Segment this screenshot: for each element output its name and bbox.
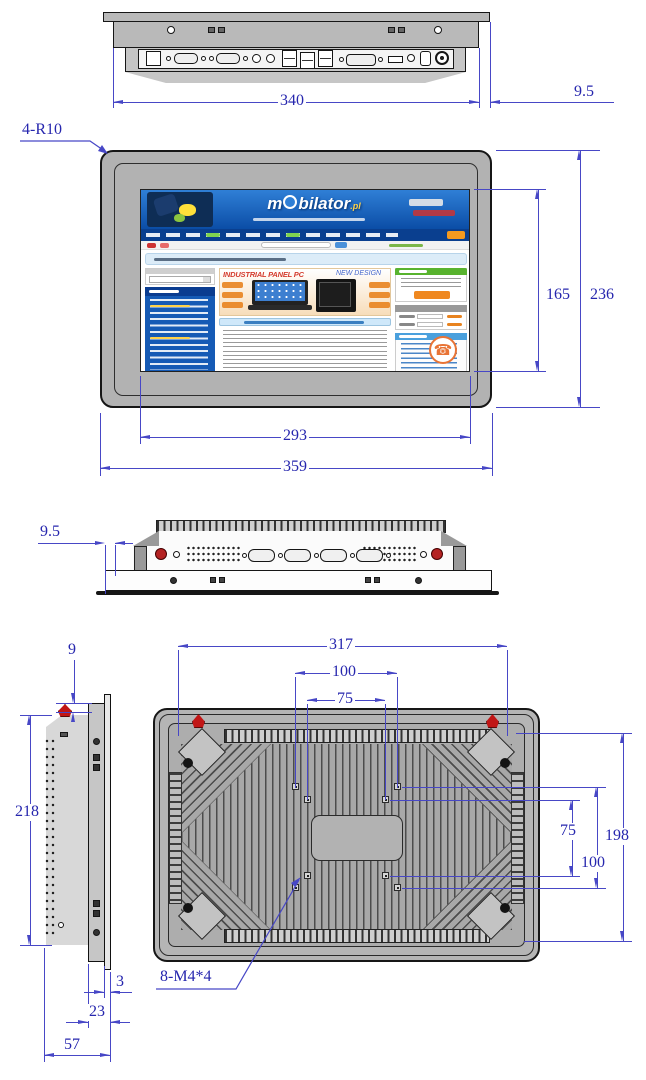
vesa-hole-icon xyxy=(382,872,389,879)
screw-hole-icon xyxy=(173,551,180,558)
nav-item-green[interactable] xyxy=(206,233,220,237)
bezel-button-icon[interactable] xyxy=(210,577,216,583)
nav-item-green[interactable] xyxy=(286,233,300,237)
rear-top-comb xyxy=(224,729,490,743)
screw-hole-icon xyxy=(166,56,171,61)
main-banner[interactable]: INDUSTRIAL PANEL PC NEW DESIGN xyxy=(219,268,391,316)
top-view-mounting-flange xyxy=(113,21,479,48)
phone-icon[interactable]: ☎ xyxy=(429,336,457,364)
banner-title: INDUSTRIAL PANEL PC xyxy=(223,270,304,279)
vesa-hole-icon xyxy=(304,872,311,879)
banner-laptop-image xyxy=(252,280,308,305)
site-substrip xyxy=(141,241,470,250)
category-links-placeholder[interactable] xyxy=(150,299,208,370)
flange-hole-icon xyxy=(434,26,442,34)
offer-button[interactable] xyxy=(414,291,450,299)
sidebar-categories[interactable] xyxy=(145,287,215,372)
bezel-button-icon[interactable] xyxy=(93,764,100,771)
dim-236-label: 236 xyxy=(588,287,616,304)
article-paragraph-placeholder xyxy=(223,351,387,371)
profile-front-glass xyxy=(104,694,111,970)
sim-slot-icon xyxy=(388,56,403,63)
bezel-button-icon[interactable] xyxy=(219,577,225,583)
bezel-button-icon[interactable] xyxy=(93,900,100,907)
logo-text: bilator xyxy=(298,194,350,213)
logo-globe-icon xyxy=(283,195,297,209)
nav-item-highlight[interactable] xyxy=(447,231,465,239)
flange-key-icon xyxy=(388,27,395,33)
article-headline xyxy=(219,318,391,326)
dim-165-label: 165 xyxy=(544,287,572,304)
login-field[interactable] xyxy=(417,314,443,319)
thumbscrew-red-icon xyxy=(431,548,443,560)
side-base-lip xyxy=(96,591,499,595)
screw-hole-icon xyxy=(378,57,383,62)
dim-198-label: 198 xyxy=(603,828,631,845)
nav-items-placeholder[interactable] xyxy=(146,233,398,237)
flag-icon[interactable] xyxy=(147,243,156,248)
article-paragraph-placeholder xyxy=(223,330,387,347)
audio-jack-icon xyxy=(252,54,261,63)
side-bezel-bar xyxy=(105,570,492,591)
serial-port-icon xyxy=(174,53,198,64)
corner-screw-icon xyxy=(183,758,193,768)
profile-port-icon xyxy=(60,732,68,737)
reset-button-icon xyxy=(407,54,415,62)
screw-hole-icon xyxy=(420,551,427,558)
sidebar-language-box xyxy=(145,268,215,285)
side-end-block xyxy=(453,546,466,571)
screw-hole-icon xyxy=(201,56,206,61)
serial-port-icon xyxy=(248,549,275,562)
flange-key-icon xyxy=(208,27,215,33)
serial-port-icon xyxy=(320,549,347,562)
banner-ribbon xyxy=(222,302,243,308)
dim-340-label: 340 xyxy=(278,93,306,110)
dim-218-label: 218 xyxy=(13,804,41,821)
banner-ribbon xyxy=(369,292,390,298)
categories-header xyxy=(145,287,215,296)
technical-drawing-panel-pc: 340 9.5 4-R10 mbilator.pl xyxy=(0,0,646,1080)
side-chamfer-cap xyxy=(133,531,159,546)
serial-port-icon xyxy=(216,53,240,64)
lan-port-icon xyxy=(146,51,161,66)
chevron-down-icon xyxy=(203,277,210,282)
screw-hole-icon xyxy=(339,57,344,62)
banner-enclosure-image xyxy=(316,279,356,312)
hdmi-port-icon xyxy=(420,51,431,66)
language-select[interactable] xyxy=(149,276,211,283)
site-header: mbilator.pl xyxy=(141,190,470,229)
infobar-text-placeholder xyxy=(154,258,286,261)
dvi-port-icon xyxy=(346,54,376,66)
dim-100-right-label: 100 xyxy=(579,855,607,872)
side-chamfer-cap xyxy=(441,531,467,546)
password-field[interactable] xyxy=(417,322,443,327)
usb-port-icon xyxy=(282,50,297,67)
corner-screw-icon xyxy=(183,903,193,913)
banner-ribbon xyxy=(222,282,243,288)
thumbscrew-red-icon xyxy=(155,548,167,560)
serial-port-icon xyxy=(356,549,383,562)
banner-ribbon xyxy=(369,282,390,288)
usb-port-icon xyxy=(300,52,315,69)
flag-icon[interactable] xyxy=(160,243,169,248)
dim-100-top-label: 100 xyxy=(330,664,358,681)
phone-glyph: ☎ xyxy=(434,342,453,359)
dim-359-label: 359 xyxy=(281,459,309,476)
flange-key-icon xyxy=(398,27,405,33)
screw-hole-icon xyxy=(278,553,283,558)
bezel-button-icon[interactable] xyxy=(365,577,371,583)
vesa-hole-icon xyxy=(394,884,401,891)
power-jack-pin-icon xyxy=(440,56,444,60)
screw-hole-icon xyxy=(314,553,319,558)
dim-75-right-label: 75 xyxy=(558,823,578,840)
flange-key-icon xyxy=(218,27,225,33)
bezel-button-icon[interactable] xyxy=(93,754,100,761)
display-screen: mbilator.pl xyxy=(140,189,470,372)
dim-57-label: 57 xyxy=(62,1037,82,1054)
rear-bottom-comb xyxy=(224,929,490,943)
top-view-body-taper xyxy=(125,72,466,83)
rear-side-ribs xyxy=(169,772,182,904)
vent-grille xyxy=(186,545,240,564)
rear-side-ribs xyxy=(511,772,524,904)
bezel-hole-icon xyxy=(93,738,100,745)
widget-login xyxy=(395,305,467,330)
vesa-hole-icon xyxy=(292,884,299,891)
dim-23-label: 23 xyxy=(87,1004,107,1021)
screw-hole-icon xyxy=(242,553,247,558)
label-mount-holes: 8-M4*4 xyxy=(158,969,214,986)
bezel-hole-icon xyxy=(415,577,422,584)
header-tagline-placeholder xyxy=(253,218,365,221)
banner-laptop-base xyxy=(248,305,312,310)
search-button[interactable] xyxy=(335,242,347,248)
dim-3-label: 3 xyxy=(114,974,126,991)
flange-hole-icon xyxy=(167,26,175,34)
dim-75-top-label: 75 xyxy=(335,691,355,708)
header-photo xyxy=(147,192,213,227)
bezel-hole-icon xyxy=(93,929,100,936)
banner-ribbon xyxy=(369,302,390,308)
profile-hole-icon xyxy=(58,922,64,928)
screw-hole-icon xyxy=(209,56,214,61)
bezel-hole-icon xyxy=(170,577,177,584)
rear-center-plate xyxy=(311,815,403,861)
screw-hole-icon xyxy=(243,56,248,61)
screw-hole-icon xyxy=(386,553,391,558)
banner-ribbon xyxy=(222,292,243,298)
audio-jack-icon xyxy=(266,54,275,63)
widget-offer xyxy=(395,268,467,302)
dim-9-label: 9 xyxy=(66,642,78,659)
screw-hole-icon xyxy=(350,553,355,558)
bezel-button-icon[interactable] xyxy=(374,577,380,583)
bezel-button-icon[interactable] xyxy=(93,910,100,917)
dim-317-label: 317 xyxy=(327,637,355,654)
banner-subtitle: NEW DESIGN xyxy=(336,270,381,277)
search-input[interactable] xyxy=(261,242,331,248)
category-link-highlight[interactable] xyxy=(150,305,190,307)
profile-heatsink-bumps xyxy=(44,737,56,935)
site-infobar xyxy=(145,253,467,265)
category-link-highlight[interactable] xyxy=(150,337,190,339)
serial-port-icon xyxy=(284,549,311,562)
thumbscrew-red-icon xyxy=(58,704,72,717)
side-end-block xyxy=(134,546,147,571)
usb-port-icon xyxy=(318,50,333,67)
corner-screw-icon xyxy=(500,758,510,768)
logo-tld: .pl xyxy=(350,201,361,211)
site-logo: mbilator.pl xyxy=(229,194,399,216)
logo-text: m xyxy=(267,194,282,213)
dim-293-label: 293 xyxy=(281,428,309,445)
header-partner-logo xyxy=(409,199,443,206)
dim-9-5-top-label: 9.5 xyxy=(572,84,596,101)
corner-screw-icon xyxy=(500,903,510,913)
substrip-status-placeholder xyxy=(389,244,423,247)
label-corner-radius: 4-R10 xyxy=(20,122,64,139)
header-partner-logo xyxy=(413,210,455,216)
site-navbar[interactable] xyxy=(141,229,470,241)
dim-9-5-side-label: 9.5 xyxy=(38,524,62,541)
